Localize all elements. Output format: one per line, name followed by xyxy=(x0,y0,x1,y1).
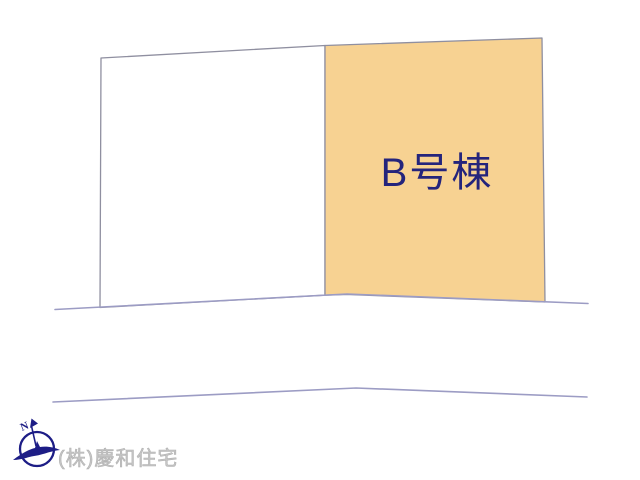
compass-north-label: N xyxy=(19,420,31,434)
parcel-b-label: B号棟 xyxy=(381,151,494,195)
parcel-map: B号棟 N xyxy=(0,0,640,480)
compass-needle xyxy=(32,426,37,446)
compass-logo: N xyxy=(13,419,60,467)
plot-layout-diagram: B号棟 N (株)慶和住宅 xyxy=(0,0,640,480)
compass-needle-flag xyxy=(30,419,38,429)
road-boundary-lower xyxy=(53,388,587,402)
parcel-a-shape xyxy=(100,46,325,308)
company-name-watermark: (株)慶和住宅 xyxy=(58,442,178,471)
